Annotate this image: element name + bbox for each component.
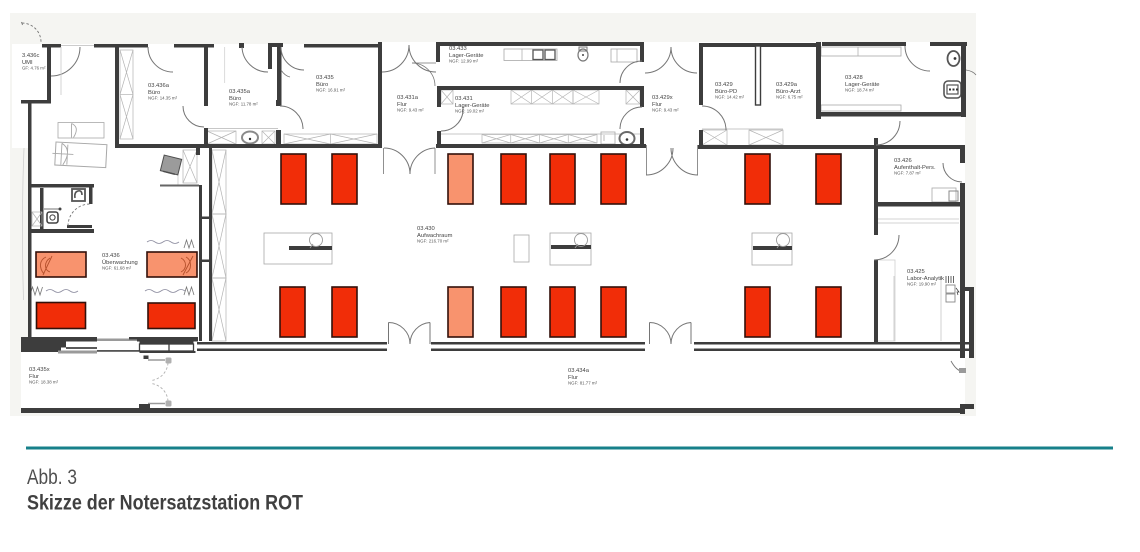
svg-text:03.436a: 03.436a xyxy=(148,83,170,89)
svg-text:GF: 4.76 m²: GF: 4.76 m² xyxy=(22,66,46,71)
svg-text:NGF: 19.90 m²: NGF: 19.90 m² xyxy=(907,282,937,287)
svg-text:03.430: 03.430 xyxy=(417,226,435,232)
svg-text:3.436c: 3.436c xyxy=(22,53,40,59)
svg-text:NGF: 14.35 m²: NGF: 14.35 m² xyxy=(148,96,178,101)
svg-text:NGF: 18.38 m²: NGF: 18.38 m² xyxy=(29,380,59,385)
svg-text:03.435: 03.435 xyxy=(316,75,334,81)
svg-text:NGF: 12.99 m²: NGF: 12.99 m² xyxy=(449,59,479,64)
svg-text:NGF: 216.70 m²: NGF: 216.70 m² xyxy=(417,239,449,244)
svg-text:03.431a: 03.431a xyxy=(397,95,419,101)
svg-text:03.428: 03.428 xyxy=(845,75,863,81)
svg-text:NGF: 14.42 m²: NGF: 14.42 m² xyxy=(715,95,745,100)
svg-text:03.435x: 03.435x xyxy=(29,367,50,373)
svg-text:03.435a: 03.435a xyxy=(229,89,251,95)
svg-text:03.429a: 03.429a xyxy=(776,82,798,88)
svg-text:NGF: 9.43 m²: NGF: 9.43 m² xyxy=(397,108,424,113)
svg-text:NGF: 19.02 m²: NGF: 19.02 m² xyxy=(455,109,485,114)
svg-text:NGF: 11.78 m²: NGF: 11.78 m² xyxy=(229,102,258,107)
svg-text:Skizze der Notersatzstation RO: Skizze der Notersatzstation ROT xyxy=(27,491,303,515)
svg-text:NGF: 7.87 m²: NGF: 7.87 m² xyxy=(894,171,921,176)
svg-text:Abb. 3: Abb. 3 xyxy=(27,466,77,489)
svg-text:NGF: 6.75 m²: NGF: 6.75 m² xyxy=(776,95,803,100)
svg-text:NGF: 61.68 m²: NGF: 61.68 m² xyxy=(102,266,132,271)
svg-text:03.429: 03.429 xyxy=(715,82,733,88)
svg-text:03.431: 03.431 xyxy=(455,96,473,102)
svg-text:03.436: 03.436 xyxy=(102,253,120,259)
svg-text:NGF: 16.91 m²: NGF: 16.91 m² xyxy=(316,88,346,93)
svg-text:03.429x: 03.429x xyxy=(652,95,673,101)
svg-text:NGF: 18.74 m²: NGF: 18.74 m² xyxy=(845,88,875,93)
svg-text:03.433: 03.433 xyxy=(449,46,467,52)
svg-text:NGF: 81.77 m²: NGF: 81.77 m² xyxy=(568,381,598,386)
svg-text:NGF: 9.43 m²: NGF: 9.43 m² xyxy=(652,108,679,113)
svg-text:03.426: 03.426 xyxy=(894,158,912,164)
svg-text:03.425: 03.425 xyxy=(907,269,925,275)
svg-text:03.434a: 03.434a xyxy=(568,368,590,374)
